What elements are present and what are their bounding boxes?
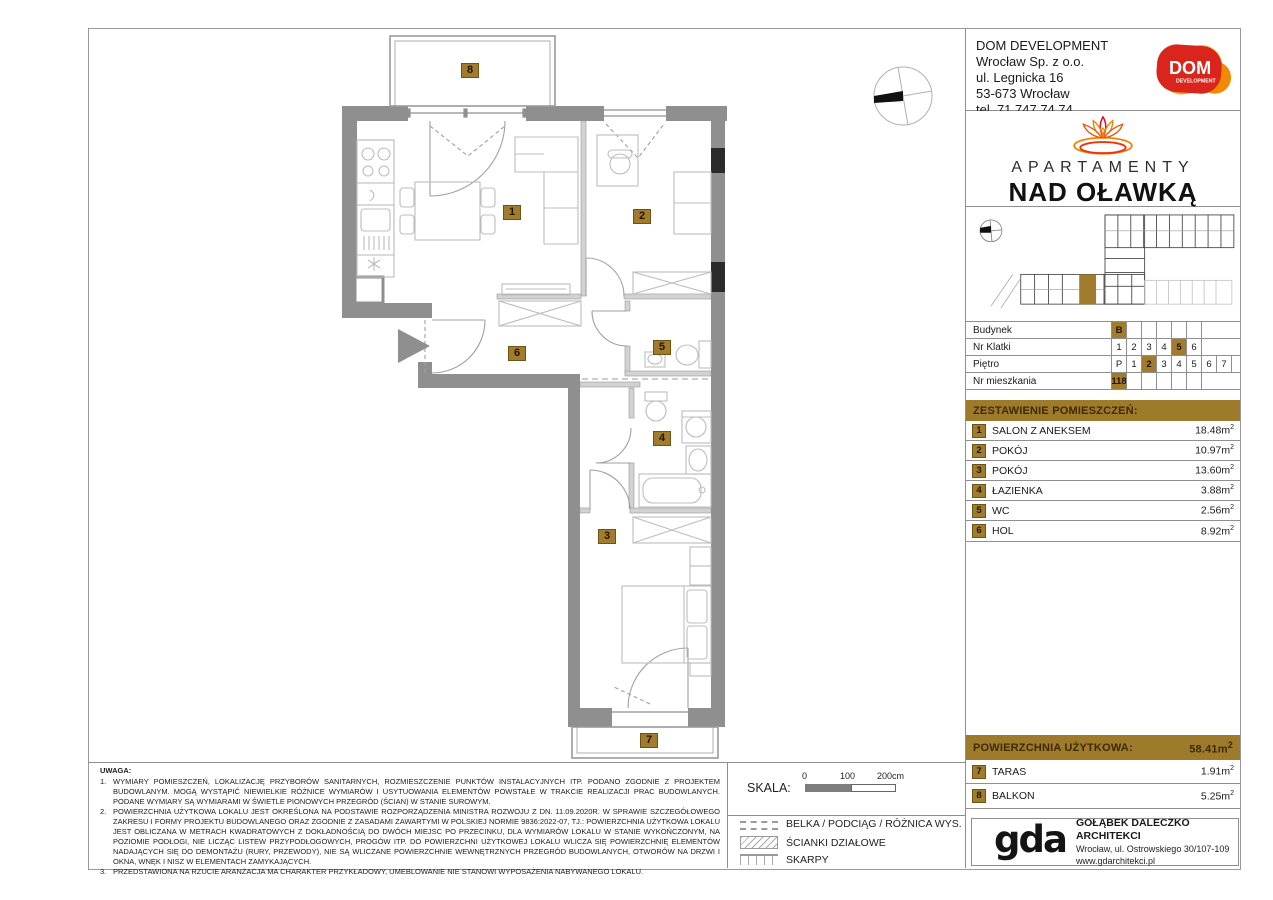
usable-area-value: 58.41m2 <box>1189 740 1233 756</box>
notes-title: UWAGA: <box>100 766 720 776</box>
plan-doors <box>425 121 709 708</box>
legend-partition-label: ŚCIANKI DZIAŁOWE <box>786 837 886 849</box>
legend-slope-swatch <box>740 854 778 865</box>
unit-option-cell: B <box>1111 322 1127 338</box>
svg-text:DOM: DOM <box>1169 58 1211 78</box>
room-name: HOL <box>992 525 1201 537</box>
plan-badge-room-3: 3 <box>598 529 616 544</box>
unit-option-cell <box>1171 322 1187 338</box>
note-number: 1. <box>100 777 113 807</box>
unit-row-cells: 123456 <box>1112 339 1202 355</box>
room-number-badge: 1 <box>972 424 986 438</box>
outdoor-name: TARAS <box>992 766 1201 778</box>
scale-bar-light <box>851 784 896 792</box>
outdoor-number-badge: 7 <box>972 765 986 779</box>
legend-block: BELKA / PODCIĄG / RÓŻNICA WYS. ŚCIANKI D… <box>727 816 965 868</box>
gda-logo: gda <box>994 818 1066 861</box>
note-text: POWIERZCHNIA UŻYTKOWA LOKALU JEST OKREŚL… <box>113 807 720 867</box>
room-row: 5 WC 2.56m2 <box>966 501 1240 521</box>
outdoor-row: 7 TARAS 1.91m2 <box>966 760 1240 784</box>
unit-option-cell: 2 <box>1141 356 1157 372</box>
room-name: ŁAZIENKA <box>992 485 1201 497</box>
plan-badge-room-2: 2 <box>633 209 651 224</box>
unit-option-cell <box>1141 322 1157 338</box>
notes-items: 1. WYMIARY POMIESZCZEŃ, LOKALIZACJĘ PRZY… <box>100 777 720 877</box>
note-number: 3. <box>100 867 113 877</box>
unit-option-cell <box>1126 373 1142 389</box>
lotus-logo-icon <box>1043 112 1163 158</box>
unit-option-cell: 5 <box>1171 339 1187 355</box>
scale-bar-dark <box>805 784 851 792</box>
unit-row-klatka: Nr Klatki 123456 <box>966 339 1240 356</box>
unit-option-cell: 6 <box>1186 339 1202 355</box>
scale-block: SKALA: 0 100 200cm <box>727 762 965 815</box>
scale-label: SKALA: <box>747 781 791 795</box>
outdoor-area: 1.91m2 <box>1201 765 1234 778</box>
room-area: 13.60m2 <box>1195 464 1234 477</box>
room-area: 2.56m2 <box>1201 504 1234 517</box>
legend-partition-swatch <box>740 836 778 849</box>
room-row: 2 POKÓJ 10.97m2 <box>966 441 1240 461</box>
unit-row-label: Budynek <box>966 322 1112 338</box>
project-brand-block: APARTAMENTY NAD OŁAWKĄ <box>966 111 1240 207</box>
note-text: PRZEDSTAWIONA NA RZUCIE ARANŻACJA MA CHA… <box>113 867 720 877</box>
room-number-badge: 2 <box>972 444 986 458</box>
legend-slope-label: SKARPY <box>786 854 829 866</box>
scale-tick-100: 100 <box>840 771 855 781</box>
unit-option-cell <box>1126 322 1142 338</box>
architect-address: Wrocław, ul. Ostrowskiego 30/107-109 <box>1076 843 1238 855</box>
compass-icon <box>874 67 932 125</box>
unit-row-label: Piętro <box>966 356 1112 372</box>
note-number: 2. <box>100 807 113 867</box>
note-text: WYMIARY POMIESZCZEŃ, LOKALIZACJĘ PRZYBOR… <box>113 777 720 807</box>
plan-furniture <box>357 135 711 676</box>
room-row: 4 ŁAZIENKA 3.88m2 <box>966 481 1240 501</box>
unit-option-cell: 7 <box>1216 356 1232 372</box>
unit-option-cell <box>1186 322 1202 338</box>
unit-option-cell <box>1141 373 1157 389</box>
scale-tick-200: 200cm <box>877 771 904 781</box>
room-row: 3 POKÓJ 13.60m2 <box>966 461 1240 481</box>
room-list-header: ZESTAWIENIE POMIESZCZEŃ: <box>966 400 1240 421</box>
room-name: SALON Z ANEKSEM <box>992 425 1195 437</box>
dom-development-logo: DOM DEVELOPMENT <box>1152 39 1232 99</box>
room-area: 18.48m2 <box>1195 424 1234 437</box>
room-name: WC <box>992 505 1201 517</box>
unit-option-cell: P <box>1111 356 1127 372</box>
unit-option-cell: 118 <box>1111 373 1127 389</box>
unit-option-cell: 5 <box>1186 356 1202 372</box>
unit-locator-table: Budynek B Nr Klatki 123456 Piętro P12345… <box>966 322 1240 392</box>
unit-option-cell: 2 <box>1126 339 1142 355</box>
outdoor-rows: 7 TARAS 1.91m2 8 BALKON 5.25m2 <box>966 760 1240 808</box>
unit-option-cell: 4 <box>1171 356 1187 372</box>
room-row: 1 SALON Z ANEKSEM 18.48m2 <box>966 421 1240 441</box>
unit-option-cell <box>1186 373 1202 389</box>
site-plan-minimap <box>966 207 1240 322</box>
plan-badge-room-4: 4 <box>653 431 671 446</box>
room-list-rows: 1 SALON Z ANEKSEM 18.48m2 2 POKÓJ 10.97m… <box>966 421 1240 541</box>
note-item: 2. POWIERZCHNIA UŻYTKOWA LOKALU JEST OKR… <box>100 807 720 867</box>
unit-row-cells: B <box>1112 322 1202 338</box>
plan-badge-taras: 7 <box>640 733 658 748</box>
room-area: 10.97m2 <box>1195 444 1234 457</box>
room-name: POKÓJ <box>992 465 1195 477</box>
room-number-badge: 3 <box>972 464 986 478</box>
unit-option-cell <box>1156 322 1172 338</box>
plan-badge-room-5: 5 <box>653 340 671 355</box>
unit-row-budynek: Budynek B <box>966 322 1240 339</box>
unit-row-pietro: Piętro P1234567 <box>966 356 1240 373</box>
unit-option-cell: 1 <box>1126 356 1142 372</box>
room-area: 3.88m2 <box>1201 484 1234 497</box>
room-number-badge: 6 <box>972 524 986 538</box>
notes-block: UWAGA: 1. WYMIARY POMIESZCZEŃ, LOKALIZAC… <box>100 766 720 877</box>
scale-tick-0: 0 <box>802 771 807 781</box>
plan-badge-balkon: 8 <box>461 63 479 78</box>
svg-text:DEVELOPMENT: DEVELOPMENT <box>1176 78 1217 84</box>
unit-option-cell <box>1156 373 1172 389</box>
unit-row-cells: P1234567 <box>1112 356 1232 372</box>
site-plan-drawing <box>966 207 1240 321</box>
outdoor-area: 5.25m2 <box>1201 790 1234 803</box>
unit-row-label: Nr Klatki <box>966 339 1112 355</box>
note-item: 1. WYMIARY POMIESZCZEŃ, LOKALIZACJĘ PRZY… <box>100 777 720 807</box>
unit-option-cell <box>1171 373 1187 389</box>
usable-area-header: POWIERZCHNIA UŻYTKOWA: 58.41m2 <box>966 735 1240 760</box>
usable-area-label: POWIERZCHNIA UŻYTKOWA: <box>973 742 1133 754</box>
note-item: 3. PRZEDSTAWIONA NA RZUCIE ARANŻACJA MA … <box>100 867 720 877</box>
room-name: POKÓJ <box>992 445 1195 457</box>
unit-option-cell: 1 <box>1111 339 1127 355</box>
unit-row-label: Nr mieszkania <box>966 373 1112 389</box>
legend-beam-label: BELKA / PODCIĄG / RÓŻNICA WYS. <box>786 818 962 830</box>
unit-option-cell: 4 <box>1156 339 1172 355</box>
room-row: 6 HOL 8.92m2 <box>966 521 1240 541</box>
room-list-table: ZESTAWIENIE POMIESZCZEŃ: 1 SALON Z ANEKS… <box>966 400 1240 542</box>
architect-block: gda GOŁĄBEK DALECZKO ARCHITEKCI Wrocław,… <box>971 818 1239 866</box>
outdoor-name: BALKON <box>992 790 1201 802</box>
room-area: 8.92m2 <box>1201 525 1234 538</box>
plan-wall-openings <box>355 106 725 727</box>
architect-website: www.gdarchitekci.pl <box>1076 855 1238 867</box>
architect-name: GOŁĄBEK DALECZKO ARCHITEKCI <box>1076 817 1238 843</box>
unit-option-cell: 3 <box>1156 356 1172 372</box>
outdoor-row: 8 BALKON 5.25m2 <box>966 784 1240 808</box>
unit-option-cell: 3 <box>1141 339 1157 355</box>
brand-title-line2: NAD OŁAWKĄ <box>966 177 1240 208</box>
plan-badge-room-1: 1 <box>503 205 521 220</box>
site-plan-compass-icon <box>980 220 1002 242</box>
usable-area-block: POWIERZCHNIA UŻYTKOWA: 58.41m2 7 TARAS 1… <box>966 735 1240 809</box>
developer-info-block: DOM DEVELOPMENT Wrocław Sp. z o.o. ul. L… <box>966 29 1240 111</box>
brand-title-line1: APARTAMENTY <box>966 159 1240 177</box>
unit-row-mieszkanie: Nr mieszkania 118 <box>966 373 1240 390</box>
floor-plan-drawing <box>88 28 965 762</box>
unit-option-cell: 6 <box>1201 356 1217 372</box>
site-plan-unit-highlight <box>1079 274 1096 304</box>
room-number-badge: 5 <box>972 504 986 518</box>
unit-row-cells: 118 <box>1112 373 1202 389</box>
plan-badge-room-6: 6 <box>508 346 526 361</box>
legend-beam-swatch <box>740 821 778 830</box>
outdoor-number-badge: 8 <box>972 789 986 803</box>
room-number-badge: 4 <box>972 484 986 498</box>
